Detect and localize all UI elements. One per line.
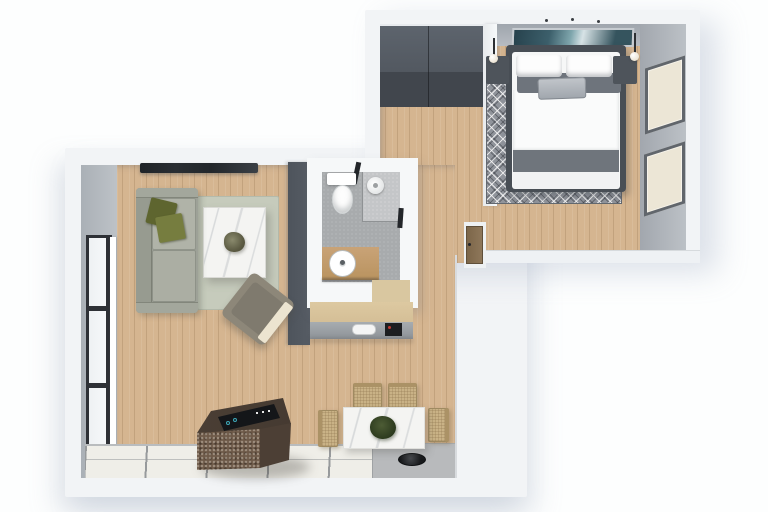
dining-chair-right <box>428 408 449 442</box>
black-bowl <box>398 453 426 466</box>
sofa-cushion-2 <box>152 250 196 302</box>
floor-plan-render <box>0 0 768 512</box>
ceiling-spot-1 <box>545 19 548 22</box>
wardrobe-top <box>380 24 484 73</box>
sofa-armrest-bottom <box>136 302 198 313</box>
dining-chair-top-2 <box>388 383 417 408</box>
kitchen-white-appliance <box>352 324 376 335</box>
cooktop-dot-2 <box>262 411 264 413</box>
bedroom-south-wall <box>483 250 700 263</box>
pendant-lamp-right <box>630 52 639 61</box>
bed-pillow-right <box>566 55 612 77</box>
wardrobe-front <box>380 72 484 107</box>
entry-door-handle <box>468 243 471 246</box>
bed-pillow-left <box>516 55 562 77</box>
window-west-pane-2 <box>89 311 106 383</box>
vanity-shadow <box>322 278 379 282</box>
dining-chair-left <box>318 410 338 447</box>
toilet-tank <box>327 173 356 185</box>
oven-indicator-light <box>388 326 391 329</box>
kitchen-counter-shadow <box>310 338 413 343</box>
shower-head-center <box>373 183 378 188</box>
bed-foot-sheet <box>513 172 619 189</box>
cooktop-burner-teal-2 <box>233 418 237 422</box>
tv <box>140 163 258 173</box>
island-front-face <box>196 428 262 471</box>
window-west-sill <box>110 237 116 462</box>
sofa-pillow-olive-2 <box>155 213 186 243</box>
cooktop-dot-3 <box>268 410 270 412</box>
coffee-table-plant <box>224 232 245 252</box>
bed-blanket-band <box>513 150 619 174</box>
oven <box>385 323 402 336</box>
ceiling-spot-3 <box>597 20 600 23</box>
dining-table-plant <box>370 416 396 439</box>
wardrobe-door-seam <box>428 26 429 107</box>
bed-accent-pillow <box>538 77 587 100</box>
window-east-upper <box>645 56 685 135</box>
dining-chair-top-1 <box>353 383 382 408</box>
bed-duvet <box>513 90 619 152</box>
sofa <box>136 188 198 313</box>
ceiling-spot-2 <box>571 18 574 21</box>
window-west <box>86 235 112 464</box>
window-west-pane-1 <box>89 238 106 306</box>
wardrobe <box>380 24 484 107</box>
slab-edge <box>455 255 457 478</box>
pendant-lamp-left <box>489 54 498 63</box>
bathroom <box>307 158 418 308</box>
vanity-faucet <box>340 260 345 265</box>
toilet-bowl <box>332 185 353 214</box>
pendant-cord-right <box>634 33 636 54</box>
bathroom-corner-counter <box>372 280 410 302</box>
cooktop-dot-1 <box>256 412 258 414</box>
sofa-armrest-top <box>136 188 198 198</box>
cooktop-burner-teal-1 <box>226 421 230 425</box>
shower-glass-edge-2 <box>397 208 403 228</box>
kitchen-counter-top <box>310 302 413 323</box>
